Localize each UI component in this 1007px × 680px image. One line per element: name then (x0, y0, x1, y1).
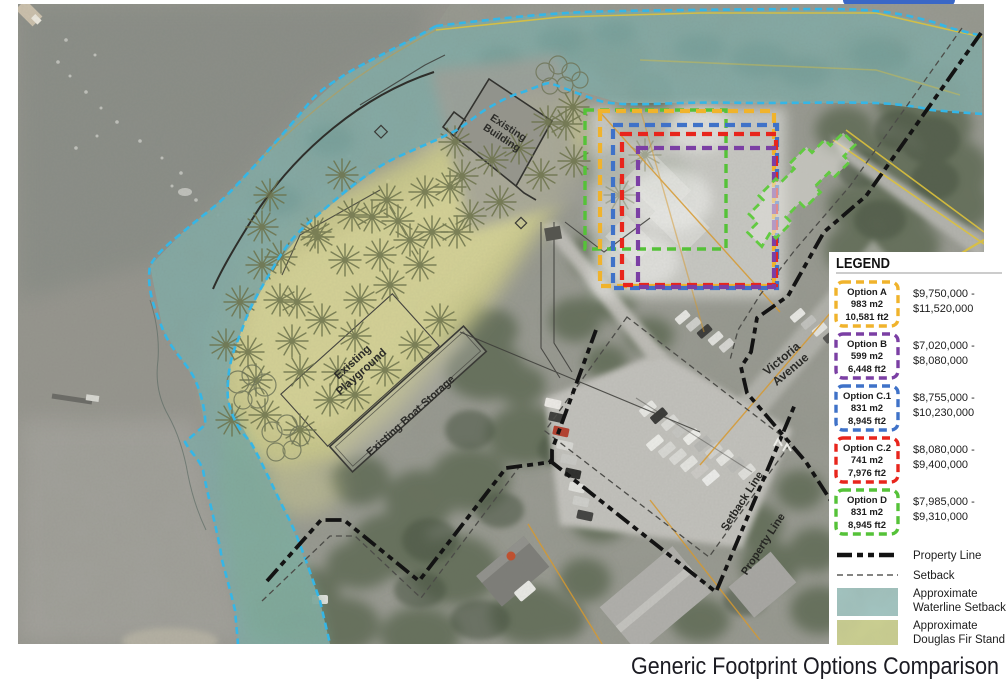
svg-text:Generic Footprint Options Comp: Generic Footprint Options Comparison (631, 653, 999, 680)
svg-text:$8,080,000: $8,080,000 (913, 355, 968, 367)
svg-text:8,945 ft2: 8,945 ft2 (848, 520, 886, 531)
svg-text:$9,310,000: $9,310,000 (913, 511, 968, 523)
svg-text:831 m2: 831 m2 (851, 403, 883, 414)
svg-text:6,448 ft2: 6,448 ft2 (848, 364, 886, 375)
svg-text:$8,080,000 -: $8,080,000 - (913, 444, 975, 456)
svg-text:Option C.2: Option C.2 (843, 443, 891, 454)
svg-text:7,976 ft2: 7,976 ft2 (848, 468, 886, 479)
svg-text:$7,020,000 -: $7,020,000 - (913, 340, 975, 352)
svg-text:599 m2: 599 m2 (851, 351, 883, 362)
svg-text:Setback: Setback (913, 570, 955, 582)
svg-text:Option B: Option B (847, 339, 887, 350)
svg-text:Property Line: Property Line (913, 550, 981, 562)
svg-text:$9,400,000: $9,400,000 (913, 459, 968, 471)
svg-text:831 m2: 831 m2 (851, 507, 883, 518)
svg-text:Waterline Setback: Waterline Setback (913, 602, 1006, 614)
svg-text:741 m2: 741 m2 (851, 455, 883, 466)
svg-text:Option A: Option A (847, 287, 887, 298)
svg-text:Approximate: Approximate (913, 588, 978, 600)
svg-text:$7,985,000 -: $7,985,000 - (913, 496, 975, 508)
svg-text:Approximate: Approximate (913, 620, 978, 632)
svg-text:Option C.1: Option C.1 (843, 391, 892, 402)
svg-text:$10,230,000: $10,230,000 (913, 407, 974, 419)
svg-text:$9,750,000 -: $9,750,000 - (913, 288, 975, 300)
svg-text:LEGEND: LEGEND (836, 256, 890, 272)
svg-text:Douglas Fir Stand: Douglas Fir Stand (913, 634, 1005, 646)
svg-text:983 m2: 983 m2 (851, 299, 883, 310)
svg-text:Option D: Option D (847, 495, 887, 506)
svg-text:8,945 ft2: 8,945 ft2 (848, 416, 886, 427)
svg-text:10,581 ft2: 10,581 ft2 (845, 312, 888, 323)
svg-text:$11,520,000: $11,520,000 (913, 303, 973, 315)
svg-text:$8,755,000 -: $8,755,000 - (913, 392, 975, 404)
